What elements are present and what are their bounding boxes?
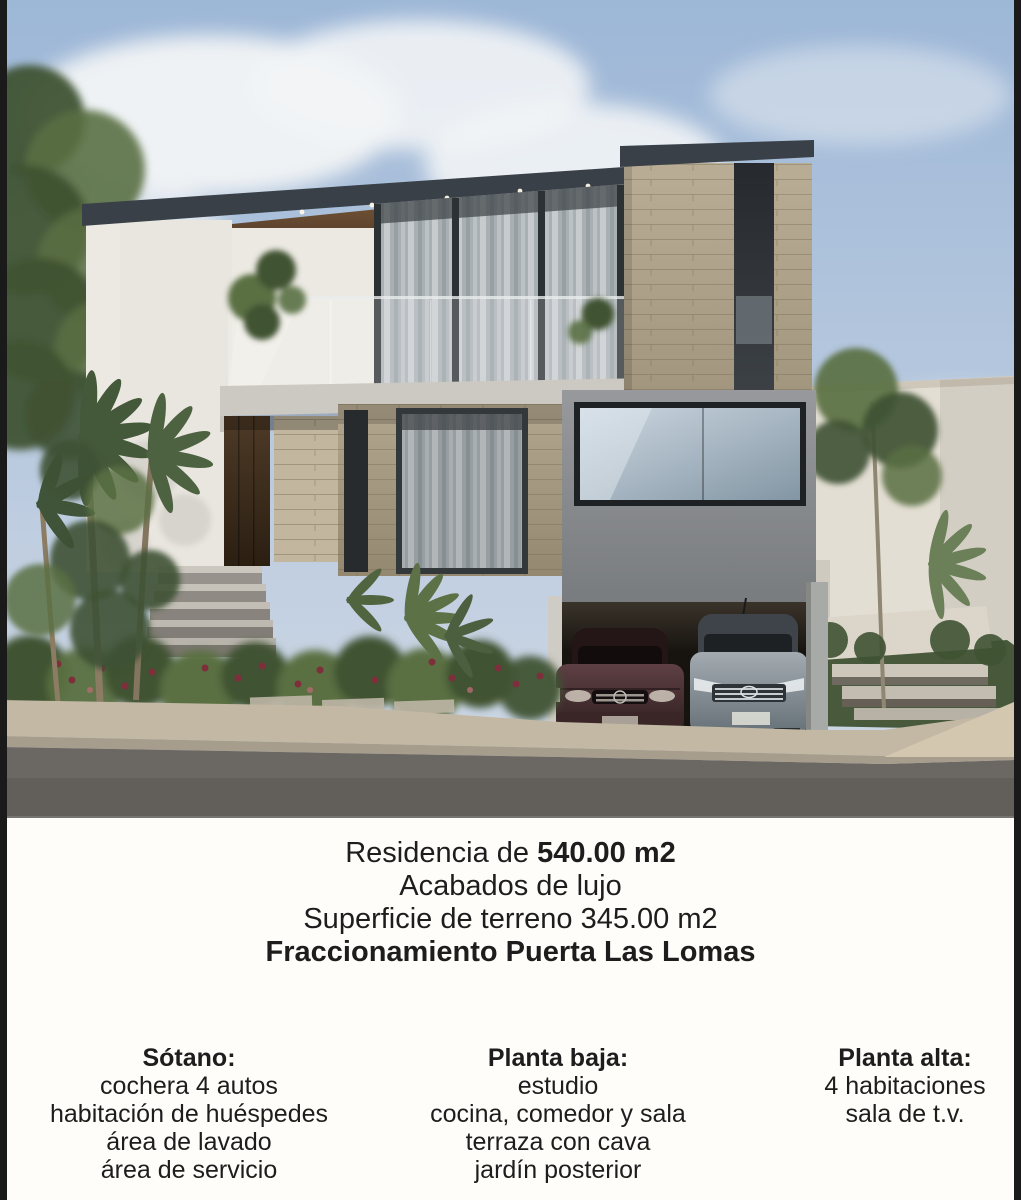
column-sotano: Sótano: cochera 4 autos habitación de hu… — [50, 1044, 328, 1184]
floor-item: habitación de huéspedes — [50, 1100, 328, 1128]
garage — [548, 582, 828, 742]
property-render-photo — [0, 0, 1021, 818]
gray-volume — [562, 390, 816, 602]
stone-tower — [620, 140, 814, 402]
tower-window — [734, 163, 774, 402]
development-name-line: Fraccionamiento Puerta Las Lomas — [266, 936, 756, 969]
floor-item: cochera 4 autos — [50, 1072, 328, 1100]
car-maroon-sedan — [556, 628, 684, 736]
picture-window — [574, 402, 806, 506]
entry-door — [224, 416, 270, 566]
land-area-line: Superficie de terreno 345.00 m2 — [266, 903, 756, 936]
floor-item: área de servicio — [50, 1156, 328, 1184]
residence-size-value: 540.00 m2 — [537, 837, 676, 869]
residence-size-line: Residencia de 540.00 m2 — [266, 837, 756, 870]
floor-item: área de lavado — [50, 1128, 328, 1156]
ground-stone-wall — [338, 404, 562, 576]
entry — [224, 416, 338, 566]
floor-item: sala de t.v. — [824, 1100, 985, 1128]
column-header: Sótano: — [50, 1044, 328, 1072]
column-header: Planta alta: — [824, 1044, 985, 1072]
left-black-border — [0, 0, 7, 1200]
floor-item: jardín posterior — [430, 1156, 686, 1184]
floor-item: estudio — [430, 1072, 686, 1100]
finishes-line: Acabados de lujo — [266, 870, 756, 903]
ground-slot-window — [344, 410, 368, 572]
column-planta-alta: Planta alta: 4 habitaciones sala de t.v. — [824, 1044, 985, 1128]
car-silver — [690, 598, 808, 736]
column-planta-baja: Planta baja: estudio cocina, comedor y s… — [430, 1044, 686, 1184]
flyer-text-section: Residencia de 540.00 m2 Acabados de lujo… — [7, 818, 1014, 1200]
floor-item: terraza con cava — [430, 1128, 686, 1156]
floor-item: 4 habitaciones — [824, 1072, 985, 1100]
right-black-border — [1014, 0, 1021, 1200]
ground-curtain-window — [396, 408, 528, 574]
column-header: Planta baja: — [430, 1044, 686, 1072]
floor-item: cocina, comedor y sala — [430, 1100, 686, 1128]
property-summary: Residencia de 540.00 m2 Acabados de lujo… — [266, 837, 756, 969]
real-estate-flyer: Residencia de 540.00 m2 Acabados de lujo… — [0, 0, 1021, 1200]
